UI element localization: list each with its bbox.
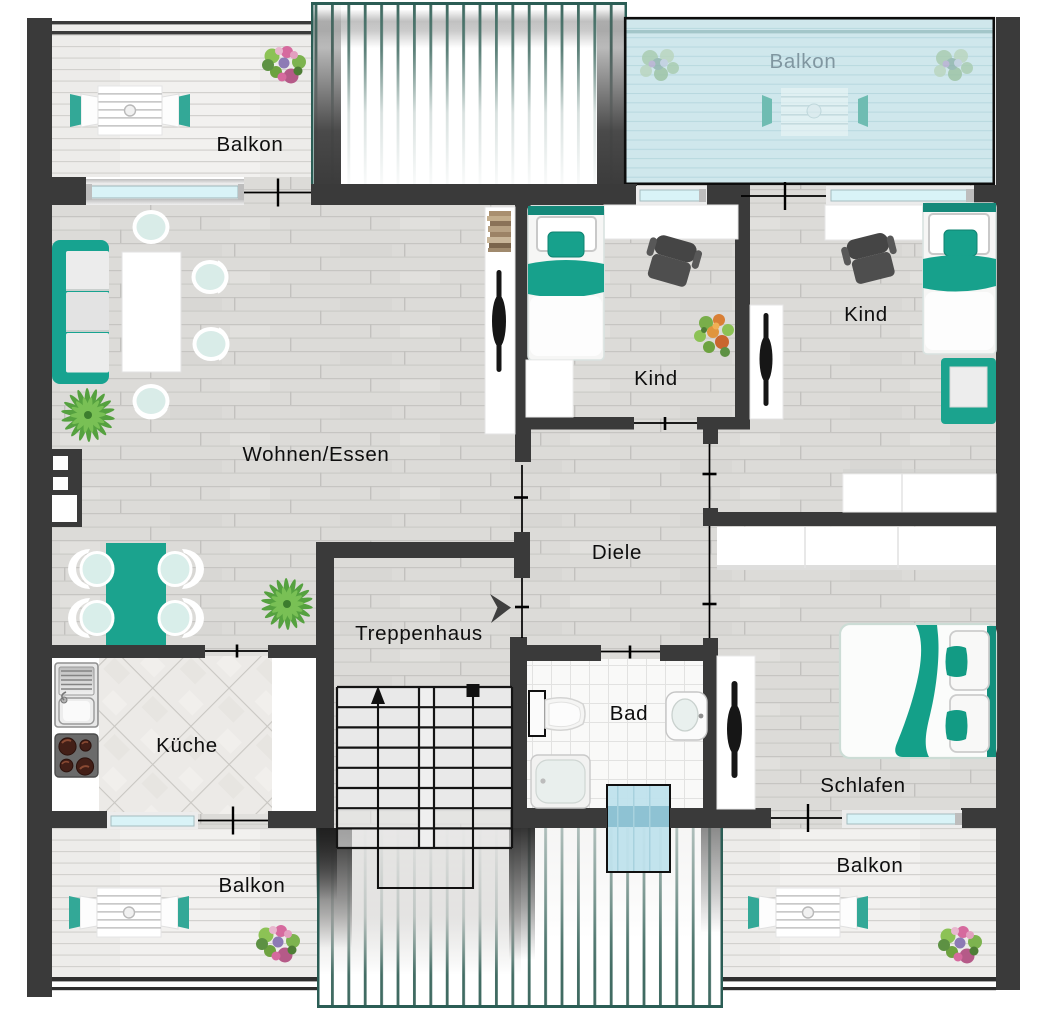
svg-text:Küche: Küche — [156, 734, 218, 757]
svg-text:Kind: Kind — [634, 367, 678, 390]
svg-text:Bad: Bad — [610, 702, 649, 725]
svg-text:Wohnen/Essen: Wohnen/Essen — [242, 443, 389, 466]
svg-text:Balkon: Balkon — [837, 854, 904, 877]
svg-text:Diele: Diele — [592, 541, 642, 564]
svg-text:Kind: Kind — [844, 303, 888, 326]
svg-text:Balkon: Balkon — [770, 50, 837, 73]
svg-text:Balkon: Balkon — [217, 133, 284, 156]
svg-text:Balkon: Balkon — [219, 874, 286, 897]
svg-text:Treppenhaus: Treppenhaus — [355, 622, 483, 645]
svg-text:Schlafen: Schlafen — [820, 774, 905, 797]
